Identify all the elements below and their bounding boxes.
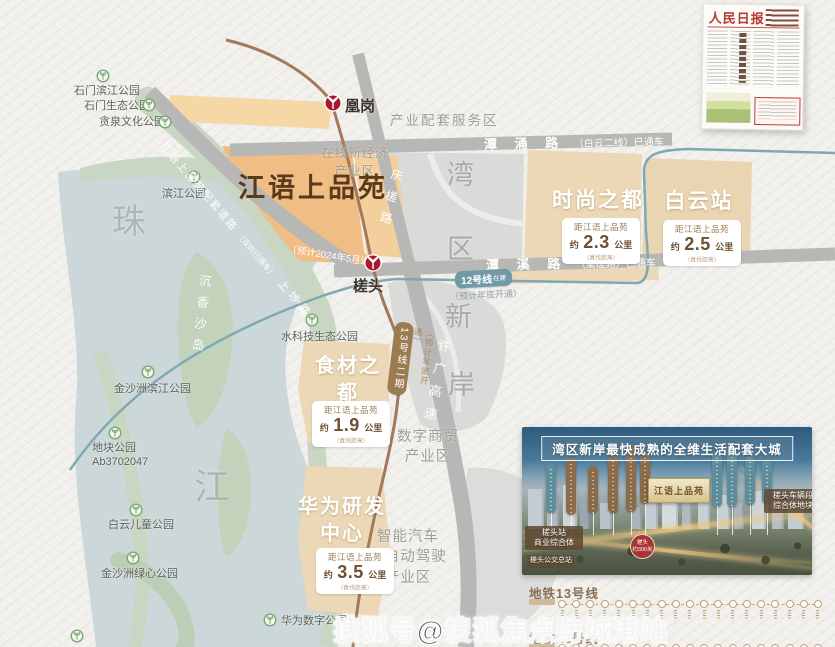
map-pin [588,466,598,513]
distance-approx: 约 [320,423,329,433]
station-dot [771,600,779,620]
line12-badge: 12号线在建 [455,269,513,289]
distance-approx: 约 [570,240,579,250]
promo-map-page: 石门滨江公园 石门生态公园 贪泉文化公园 滨江公园 水科技生态公园 金沙洲滨江公… [0,0,835,647]
block-title-fashion: 时尚之都 [545,187,651,214]
geo-label-jiang: 江 [194,458,230,510]
station-dot [686,600,694,620]
park-icon [142,98,156,112]
park-icon [108,426,122,440]
park-label: 金沙洲绿心公园 [101,568,178,582]
park-label: 水科技生态公园 [281,331,358,345]
station-label-chatou: 槎头 [353,275,383,296]
newspaper-column [707,30,728,86]
newspaper-highlight-box [754,97,800,126]
aerial-render-panel: 湾区新岸最快成熟的全维生活配套大城 江语上品苑 槎头站 商业综合体 槎头公交总站… [522,427,812,575]
park-label: 白云儿童公园 [108,519,174,533]
park-label: 地块公园 Ab3702047 [92,442,148,470]
park-icon [96,69,110,83]
pin-stem [750,505,751,535]
distance-unit: 公里 [368,570,386,580]
geo-label-wan: 湾 [447,153,474,192]
legend-line13-pill [529,599,555,605]
newspaper-headline-block [766,9,799,27]
distance-note: （直线距离） [670,255,735,264]
render-label-depot: 槎头车辆段 综合体地块 [764,489,812,513]
metro-logo-huanggang [324,94,342,112]
distance-unit: 公里 [614,240,632,250]
newspaper-masthead: 人民日报 [709,7,765,27]
park-label: 石门滨江公园 [74,85,140,99]
watermark-text: 搜狐号@搜狐焦点防城港站 [333,609,668,647]
distance-badge-fashion: 距江语上品苑 约 2.3 公里 （直线距离） [562,218,640,264]
pin-stem [645,504,646,535]
distance-approx: 约 [324,570,333,580]
distance-value: 2.3 [583,232,610,252]
station-dot [757,600,765,620]
park-label: 金沙洲滨江公园 [114,383,191,397]
park-icon [129,503,143,517]
distance-value: 2.5 [684,234,711,254]
newspaper-column [753,31,775,87]
station-dot [814,600,822,620]
distance-value: 3.5 [337,562,364,582]
render-distance-badge: 槎头 约300米 [630,534,655,559]
geo-label-an: 岸 [448,363,475,402]
station-dot [729,600,737,620]
distance-approx: 约 [671,242,680,252]
zone-label-service: 产业配套服务区 [390,112,499,131]
park-icon [263,613,277,627]
map-pin [566,458,576,515]
render-project-plaque: 江语上品苑 [648,478,710,503]
newspaper-vertical-headline [739,33,747,83]
render-label-bus-terminal: 槎头公交总站 [527,555,575,568]
park-label: 石门生态公园 [84,100,150,114]
station-dot [700,600,708,620]
pin-stem [717,507,718,535]
newspaper-photo [706,92,750,123]
distance-note: （直线距离） [319,436,384,445]
park-label: 贪泉文化公园 [99,116,165,130]
pin-stem [613,513,614,535]
station-dot [672,600,680,620]
map-pin [546,463,556,513]
park-icon [141,365,155,379]
distance-value: 1.9 [333,415,360,435]
project-title: 江语上品苑 [238,166,388,205]
render-label-chatou-complex: 槎头站 商业综合体 [525,526,583,550]
road-status: （白云二线）已通车 [574,137,664,150]
render-panel-title: 湾区新岸最快成熟的全维生活配套大城 [541,436,793,461]
map-pin [745,456,755,505]
zone-label-digital-trade: 数字商贸 产业区 [390,427,466,468]
newspaper-clipping: 人民日报 [701,3,805,130]
map-pin [608,455,618,513]
pin-stem [593,513,594,535]
block-title-food: 食材之都 [310,353,386,407]
metro-logo-chatou [364,254,382,272]
distance-unit: 公里 [715,242,733,252]
newspaper-divider [708,26,800,28]
distance-unit: 公里 [364,423,382,433]
station-dot [714,600,722,620]
geo-label-qu: 区 [447,227,474,266]
station-label-huanggang: 凰岗 [345,95,375,116]
road-label-tanyong: 潭 涌 路 （白云二线）已通车 [484,130,664,154]
park-icon [126,551,140,565]
distance-badge-food: 距江语上品苑 约 1.9 公里 （直线距离） [312,401,390,447]
block-title-huawei: 华为研发中心 [294,494,390,548]
line12-name: 12号线 [461,275,493,288]
geo-label-zhu: 珠 [112,194,146,243]
distance-badge-baiyun: 距江语上品苑 约 2.5 公里 （直线距离） [663,220,741,266]
station-dot [800,600,808,620]
station-dot [743,600,751,620]
distance-note: （直线距离） [323,583,388,592]
pin-stem [631,512,632,535]
pin-stem [732,507,733,535]
line12-tag: 在建 [493,275,506,283]
road-name: 潭 涌 路 [484,135,566,152]
newspaper-column [777,31,800,87]
station-dot [786,600,794,620]
park-icon [70,629,84,643]
block-title-baiyun-station: 白云站 [655,188,743,215]
distance-note: （直线距离） [569,253,634,262]
park-icon [158,115,172,129]
distance-badge-huawei: 距江语上品苑 约 3.5 公里 （直线距离） [316,548,394,594]
